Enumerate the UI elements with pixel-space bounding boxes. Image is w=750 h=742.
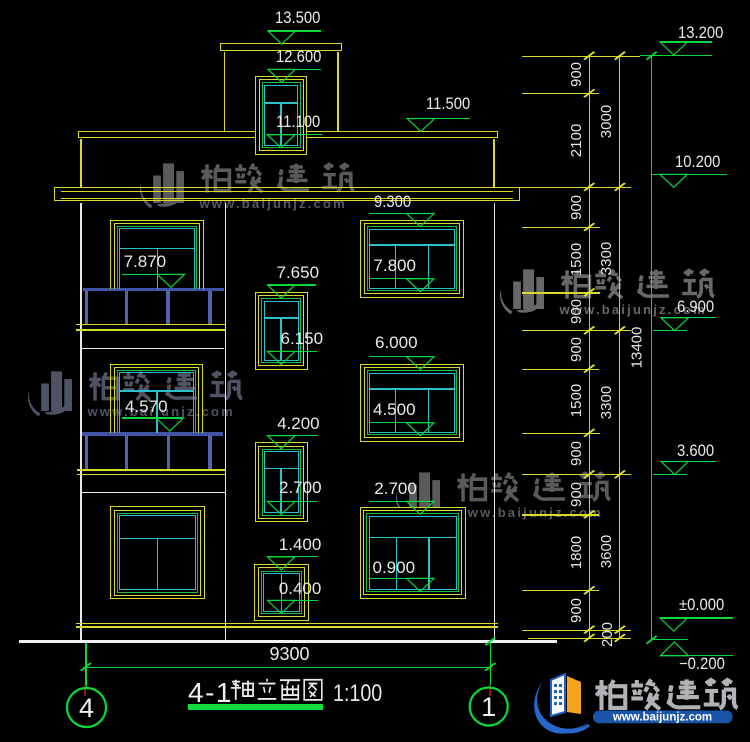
svg-text:1: 1 xyxy=(481,692,496,722)
svg-text:4: 4 xyxy=(79,693,94,723)
svg-text:www.baijunjz.com: www.baijunjz.com xyxy=(612,712,712,724)
